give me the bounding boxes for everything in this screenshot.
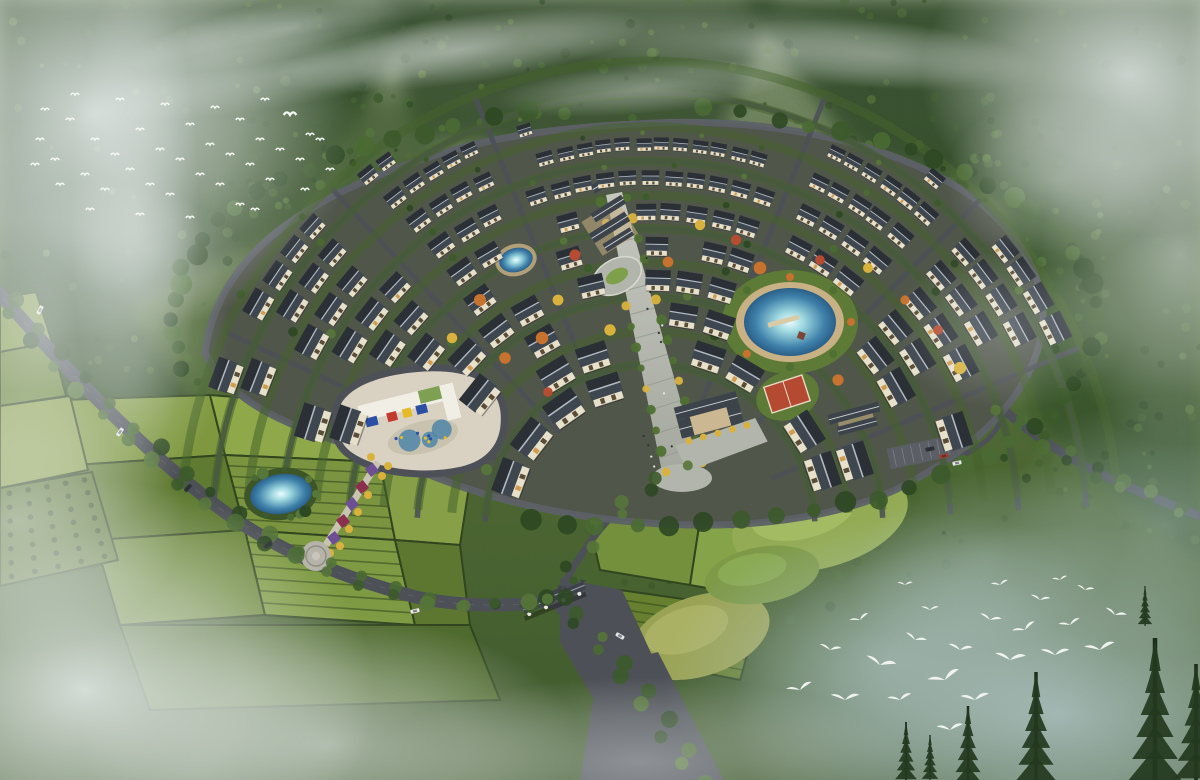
accent-tree bbox=[536, 332, 548, 344]
pedestrian bbox=[653, 465, 655, 467]
pedestrian bbox=[645, 257, 647, 259]
accent-tree bbox=[832, 374, 843, 385]
village-house bbox=[645, 237, 668, 257]
village-house bbox=[637, 138, 652, 151]
pedestrian bbox=[671, 445, 673, 447]
village-house bbox=[636, 204, 656, 222]
accent-tree bbox=[474, 294, 486, 306]
village-house bbox=[660, 203, 681, 222]
pedestrian bbox=[660, 341, 662, 343]
village-house bbox=[672, 138, 688, 152]
accent-tree bbox=[604, 324, 615, 335]
village-house bbox=[653, 137, 668, 150]
village-house bbox=[618, 170, 636, 186]
pedestrian bbox=[650, 455, 652, 457]
accent-tree bbox=[731, 235, 741, 245]
pedestrian bbox=[643, 435, 645, 437]
pedestrian bbox=[661, 324, 663, 326]
accent-tree bbox=[569, 249, 580, 260]
village-house bbox=[686, 172, 706, 190]
village-house bbox=[667, 302, 698, 330]
village-house bbox=[614, 137, 630, 151]
village-house bbox=[596, 172, 616, 190]
accent-tree bbox=[447, 333, 458, 344]
accent-tree bbox=[543, 387, 552, 396]
aerial-rendering-stage bbox=[0, 0, 1200, 780]
village-house bbox=[675, 270, 703, 296]
village-house bbox=[692, 140, 709, 155]
fog-patch bbox=[945, 95, 1165, 265]
accent-tree bbox=[815, 255, 825, 265]
accent-tree bbox=[754, 262, 767, 275]
village-house bbox=[595, 139, 612, 154]
pedestrian bbox=[647, 444, 649, 446]
village-house bbox=[645, 270, 671, 292]
accent-tree bbox=[499, 352, 510, 363]
mountain-residential-community-rendering bbox=[0, 0, 1200, 780]
pedestrian bbox=[646, 308, 648, 310]
accent-tree bbox=[553, 295, 564, 306]
accent-tree bbox=[863, 263, 873, 273]
accent-tree bbox=[663, 257, 674, 268]
accent-tree bbox=[695, 220, 705, 230]
village-house bbox=[642, 170, 660, 185]
village-house bbox=[665, 171, 684, 187]
fog-patch bbox=[890, 250, 1130, 410]
pedestrian bbox=[663, 392, 665, 394]
pedestrian bbox=[658, 332, 660, 334]
